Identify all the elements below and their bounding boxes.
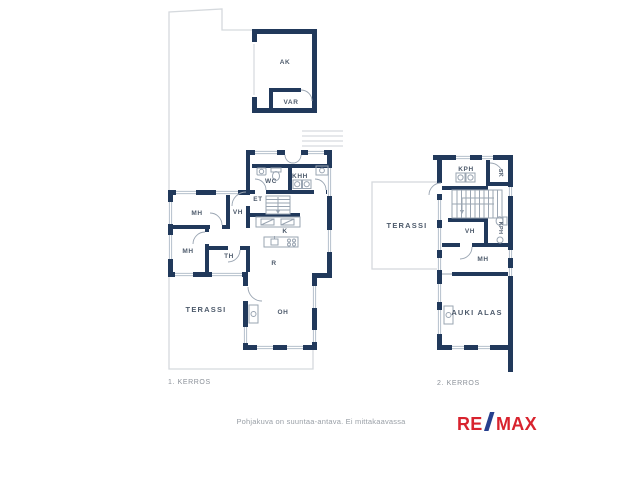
room-label-kph1: KPH [458, 166, 474, 173]
room-label-mh2: MH [182, 248, 193, 255]
entrance-steps-icon [302, 131, 343, 146]
room-label-var: VAR [283, 99, 298, 106]
stairs2-icon [452, 190, 502, 218]
floor1-plan: AK VAR WC KHH ET MH VH MH TH K R TERASSI… [168, 9, 343, 386]
wc-sink-icon [257, 168, 266, 175]
room-label-et: ET [253, 196, 263, 203]
logo-re-text: RE [457, 414, 483, 434]
room-label-th: TH [224, 253, 234, 260]
stairs-icon [266, 196, 290, 214]
room-label-r: R [271, 260, 276, 267]
room-label-mh1: MH [191, 210, 202, 217]
floor2-walls [433, 155, 513, 372]
kitchen-island-icon [264, 236, 298, 247]
disclaimer-text: Pohjakuva on suuntaa-antava. Ei mittakaa… [236, 417, 406, 426]
room-label-wc: WC [265, 178, 277, 185]
room-label-sk: SK [497, 169, 503, 177]
khh-washer-icons [293, 180, 311, 189]
kph-washer-icons [456, 173, 475, 182]
room-label-terassi-2: TERASSI [387, 221, 428, 230]
kph2-sink-icon [497, 237, 503, 243]
floor1-walls [168, 29, 332, 350]
room-label-auki-alas: AUKI ALAS [451, 308, 502, 317]
fireplace-icon [249, 305, 258, 323]
logo-slash-icon [484, 412, 495, 431]
room-label-vh2: VH [465, 228, 475, 235]
floor2-plan: TERASSI KPH SK VH KPH MH AUKI ALAS 2. KE… [372, 155, 513, 387]
room-label-mh3: MH [477, 256, 488, 263]
kitchen-counter-icon [256, 217, 300, 227]
floor-plan-page: AK VAR WC KHH ET MH VH MH TH K R TERASSI… [0, 0, 640, 480]
room-label-terassi-1: TERASSI [186, 305, 227, 314]
room-label-khh: KHH [292, 173, 308, 180]
room-label-kph2: KPH [497, 222, 503, 235]
room-label-ak: AK [280, 59, 291, 66]
room-label-vh: VH [233, 209, 243, 216]
room-label-oh: OH [278, 309, 289, 316]
floor1-caption: 1. KERROS [168, 379, 211, 386]
floor2-caption: 2. KERROS [437, 380, 480, 387]
room-label-k: K [282, 228, 287, 235]
remax-logo: RE MAX [457, 412, 537, 434]
floor-plan-drawing: AK VAR WC KHH ET MH VH MH TH K R TERASSI… [0, 0, 640, 480]
logo-max-text: MAX [496, 414, 537, 434]
floor2-fixtures [444, 173, 507, 324]
